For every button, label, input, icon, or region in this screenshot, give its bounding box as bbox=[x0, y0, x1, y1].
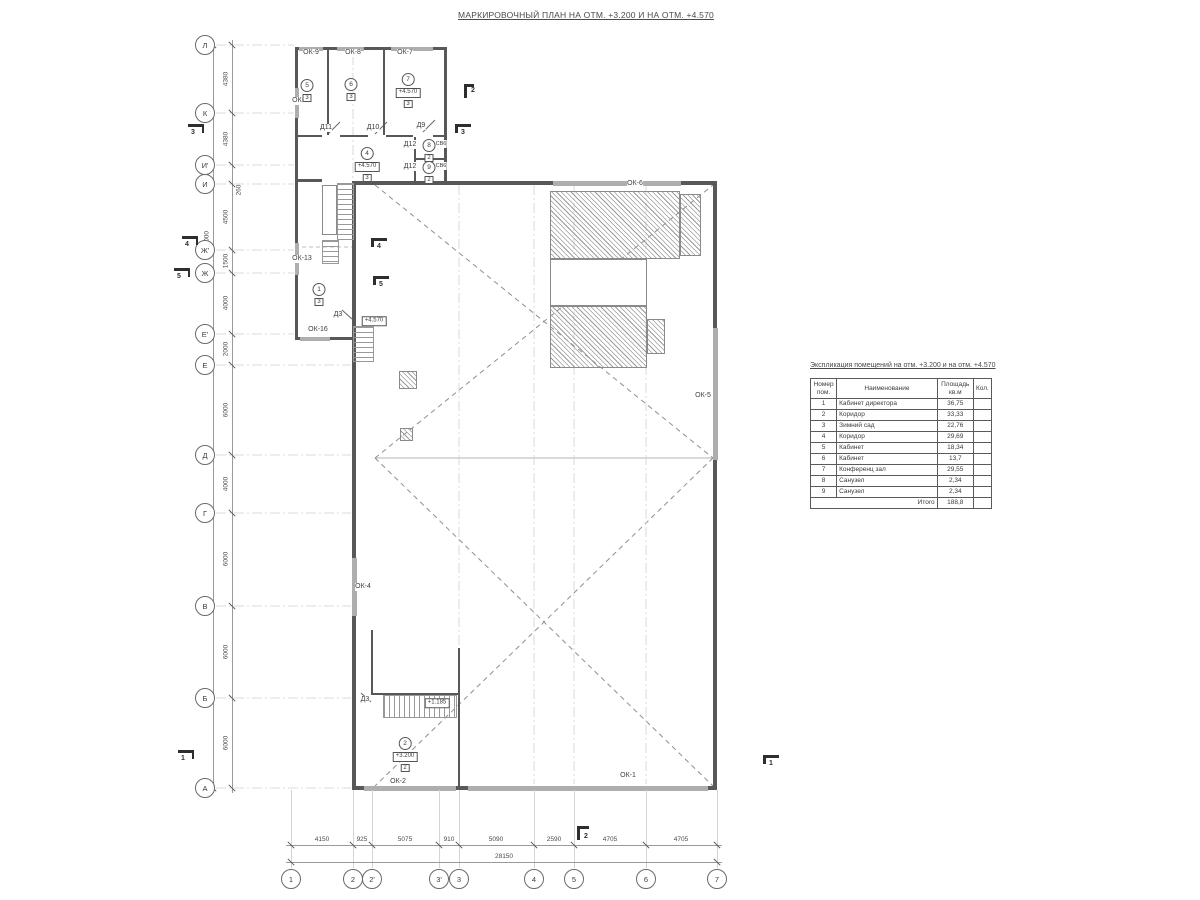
section-flag-stem bbox=[373, 276, 376, 285]
dimension-label: 6000 bbox=[223, 403, 230, 417]
room-number: 6 bbox=[811, 454, 837, 465]
window-mark-ОК-8: ОК-8 bbox=[345, 49, 361, 57]
window-mark-ОК-13: ОК-13 bbox=[292, 255, 312, 263]
floor-type-square: 3 bbox=[303, 94, 312, 102]
room-qty bbox=[973, 465, 991, 476]
floor-type-square: 2 bbox=[425, 176, 434, 184]
room-name: Зимний сад bbox=[837, 421, 938, 432]
axis-bubble-И': И' bbox=[195, 155, 215, 175]
axis-extension-line bbox=[353, 790, 354, 868]
dimension-chain bbox=[232, 40, 233, 793]
room-qty bbox=[973, 432, 991, 443]
window-mark-ОК-2: ОК-2 bbox=[390, 778, 406, 786]
room-qty bbox=[973, 410, 991, 421]
table-row: 2Коридор33,33 bbox=[811, 410, 992, 421]
room-name: Санузел bbox=[837, 487, 938, 498]
door-mark-Д3: Д3 bbox=[361, 696, 370, 704]
dimension-label: 910 bbox=[444, 836, 455, 843]
dimension-label: 4150 bbox=[315, 836, 329, 843]
col-header-number: Номер пом. bbox=[811, 379, 837, 399]
dimension-label: 4705 bbox=[603, 836, 617, 843]
room-marker-5: 53 bbox=[301, 79, 314, 102]
stair-flight bbox=[353, 326, 374, 362]
dimension-label: 260 bbox=[236, 185, 243, 196]
wall bbox=[371, 630, 373, 695]
dimension-chain bbox=[286, 845, 722, 846]
window bbox=[300, 337, 330, 341]
wall bbox=[414, 149, 416, 162]
room-number-circle: 4 bbox=[361, 147, 374, 160]
window-mark-ОК-16: ОК-16 bbox=[308, 326, 328, 334]
door-mark-Д12: Д12 bbox=[404, 141, 417, 149]
table-row: 4Коридор29,69 bbox=[811, 432, 992, 443]
table-total-row: Итого188,8 bbox=[811, 498, 992, 509]
dimension-label: 2000 bbox=[223, 342, 230, 356]
dimension-label-overall: 28150 bbox=[495, 853, 513, 860]
room-area: 2,34 bbox=[937, 487, 973, 498]
window-mark-ОК-5: ОК-5 bbox=[695, 392, 711, 400]
axis-extension-line bbox=[717, 790, 718, 868]
elevation-box: +3.200 bbox=[393, 752, 418, 762]
wall bbox=[295, 179, 322, 182]
vent-mark: СВ6 bbox=[436, 140, 447, 148]
window-mark-ОК-1: ОК-1 bbox=[620, 772, 636, 780]
axis-extension-line bbox=[646, 790, 647, 868]
dimension-chain bbox=[213, 40, 214, 793]
col-header-area: Площадь кв.м bbox=[937, 379, 973, 399]
room-area: 33,33 bbox=[937, 410, 973, 421]
axis-bubble-5: 5 bbox=[564, 869, 584, 889]
dimension-label: 5090 bbox=[489, 836, 503, 843]
section-flag-number: 4 bbox=[377, 243, 381, 250]
door-mark-Д10: Д10 bbox=[367, 124, 380, 132]
room-number-circle: 5 bbox=[301, 79, 314, 92]
room-marker-6: 63 bbox=[345, 78, 358, 101]
roof-hatch-area bbox=[400, 428, 413, 441]
window-mark-ОК-4: ОК-4 bbox=[355, 583, 371, 591]
room-number-circle: 6 bbox=[345, 78, 358, 91]
dimension-label: 4000 bbox=[223, 296, 230, 310]
section-flag-stem bbox=[371, 238, 374, 247]
window-mark-ОК-9: ОК-9 bbox=[303, 49, 319, 57]
blueprint-canvas: МАРКИРОВОЧНЫЙ ПЛАН НА ОТМ. +3.200 И НА О… bbox=[0, 0, 1200, 900]
wall bbox=[327, 50, 329, 135]
dimension-label: 925 bbox=[357, 836, 368, 843]
axis-bubble-2': 2' bbox=[362, 869, 382, 889]
stair-flight bbox=[337, 183, 354, 240]
axis-bubble-Г: Г bbox=[195, 503, 215, 523]
table-row: 3Зимний сад22,76 bbox=[811, 421, 992, 432]
door-mark-Д12: Д12 bbox=[404, 163, 417, 171]
dimension-label: 6000 bbox=[223, 645, 230, 659]
dimension-label: 1500 bbox=[223, 254, 230, 268]
window-mark-ОК-6: ОК-6 bbox=[627, 180, 643, 188]
axis-extension-line bbox=[291, 790, 292, 868]
section-flag-stem bbox=[202, 124, 205, 133]
axis-extension-line bbox=[534, 790, 535, 868]
room-number: 5 bbox=[811, 443, 837, 454]
section-flag-number: 3 bbox=[461, 129, 465, 136]
table-row: 1Кабинет директора36,75 bbox=[811, 399, 992, 410]
wall bbox=[340, 135, 368, 137]
dimension-label: 6000 bbox=[223, 736, 230, 750]
section-flag-number: 1 bbox=[181, 755, 185, 762]
axis-bubble-Ж': Ж' bbox=[195, 240, 215, 260]
room-number: 1 bbox=[811, 399, 837, 410]
room-number-circle: 2 bbox=[399, 737, 412, 750]
room-name: Конференц зал bbox=[837, 465, 938, 476]
col-header-name: Наименование bbox=[837, 379, 938, 399]
room-schedule: Экспликация помещений на отм. +3.200 и н… bbox=[810, 362, 992, 509]
elevation-box: +1.185 bbox=[425, 698, 450, 708]
axis-bubble-Е: Е bbox=[195, 355, 215, 375]
room-qty bbox=[973, 421, 991, 432]
axis-bubble-3: 3 bbox=[449, 869, 469, 889]
section-flag-stem bbox=[188, 268, 191, 277]
room-name: Санузел bbox=[837, 476, 938, 487]
floor-type-square: 3 bbox=[404, 100, 413, 108]
dimension-label: 4380 bbox=[223, 132, 230, 146]
room-name: Кабинет bbox=[837, 454, 938, 465]
axis-bubble-Б: Б bbox=[195, 688, 215, 708]
section-flag-stem bbox=[192, 750, 195, 759]
section-flag-number: 4 bbox=[185, 241, 189, 248]
col-header-qty: Кол. bbox=[973, 379, 991, 399]
room-number: 2 bbox=[811, 410, 837, 421]
room-number-circle: 1 bbox=[313, 283, 326, 296]
room-area: 29,55 bbox=[937, 465, 973, 476]
window bbox=[713, 328, 718, 460]
total-label: Итого bbox=[811, 498, 938, 509]
room-area: 2,34 bbox=[937, 476, 973, 487]
table-row: 6Кабинет13,7 bbox=[811, 454, 992, 465]
room-marker-4: 4+4.5703 bbox=[355, 147, 380, 182]
roof-plan-lines bbox=[0, 0, 1200, 900]
axis-bubble-3': 3' bbox=[429, 869, 449, 889]
floor-type-square: 3 bbox=[315, 298, 324, 306]
wall bbox=[458, 648, 460, 788]
room-number: 8 bbox=[811, 476, 837, 487]
floor-type-square: 3 bbox=[347, 93, 356, 101]
roof-hatch-area bbox=[550, 191, 680, 259]
dimension-label: 4000 bbox=[223, 477, 230, 491]
door-mark-Д3: Д3 bbox=[334, 311, 343, 319]
roof-hatch-area bbox=[550, 306, 647, 368]
room-number-circle: 8 bbox=[423, 139, 436, 152]
room-marker-8: 82 bbox=[423, 139, 436, 162]
stair-landing bbox=[322, 240, 339, 264]
axis-bubble-Л: Л bbox=[195, 35, 215, 55]
room-area: 36,75 bbox=[937, 399, 973, 410]
axis-extension-line bbox=[574, 790, 575, 868]
dimension-label: 4380 bbox=[223, 72, 230, 86]
room-number: 4 bbox=[811, 432, 837, 443]
wall bbox=[295, 135, 322, 137]
dimension-label: 2590 bbox=[547, 836, 561, 843]
wall bbox=[414, 137, 416, 140]
room-qty bbox=[973, 476, 991, 487]
room-qty bbox=[973, 454, 991, 465]
axis-bubble-К: К bbox=[195, 103, 215, 123]
axis-bubble-6: 6 bbox=[636, 869, 656, 889]
axis-bubble-И: И bbox=[195, 174, 215, 194]
room-name: Коридор bbox=[837, 410, 938, 421]
table-row: 8Санузел2,34 bbox=[811, 476, 992, 487]
roof-area bbox=[550, 259, 647, 306]
section-flag-number: 1 bbox=[769, 760, 773, 767]
wall bbox=[713, 181, 717, 790]
room-number: 9 bbox=[811, 487, 837, 498]
total-qty bbox=[973, 498, 991, 509]
room-qty bbox=[973, 487, 991, 498]
window bbox=[364, 786, 456, 791]
room-number-circle: 7 bbox=[402, 73, 415, 86]
room-name: Кабинет bbox=[837, 443, 938, 454]
section-flag-number: 5 bbox=[177, 273, 181, 280]
room-schedule-title: Экспликация помещений на отм. +3.200 и н… bbox=[810, 362, 992, 369]
table-row: 5Кабинет18,34 bbox=[811, 443, 992, 454]
axis-bubble-7: 7 bbox=[707, 869, 727, 889]
wall bbox=[433, 135, 446, 137]
axis-bubble-2: 2 bbox=[343, 869, 363, 889]
floor-type-square: 3 bbox=[363, 174, 372, 182]
vent-mark: СВ6 bbox=[436, 162, 447, 170]
axis-bubble-Е': Е' bbox=[195, 324, 215, 344]
door-mark-Д11: Д11 bbox=[320, 124, 332, 132]
axis-extension-line bbox=[459, 790, 460, 868]
room-area: 29,69 bbox=[937, 432, 973, 443]
room-name: Коридор bbox=[837, 432, 938, 443]
axis-extension-line bbox=[439, 790, 440, 868]
room-area: 13,7 bbox=[937, 454, 973, 465]
roof-hatch-area bbox=[399, 371, 417, 389]
dimension-label: 4500 bbox=[223, 210, 230, 224]
axis-extension-line bbox=[372, 790, 373, 868]
section-flag-stem bbox=[196, 236, 199, 245]
axis-bubble-4: 4 bbox=[524, 869, 544, 889]
window bbox=[468, 786, 708, 791]
door-mark-Д9: Д9 bbox=[417, 122, 426, 130]
room-schedule-table: Номер пом. Наименование Площадь кв.м Кол… bbox=[810, 378, 992, 509]
wall bbox=[352, 181, 356, 790]
section-flag-stem bbox=[455, 124, 458, 133]
axis-bubble-В: В bbox=[195, 596, 215, 616]
window bbox=[553, 181, 681, 186]
section-flag-number: 2 bbox=[584, 833, 588, 840]
drawing-title: МАРКИРОВОЧНЫЙ ПЛАН НА ОТМ. +3.200 И НА О… bbox=[396, 10, 776, 20]
elevation-box: +4.570 bbox=[396, 88, 421, 98]
window-mark-ОК-7: ОК-7 bbox=[397, 49, 413, 57]
room-qty bbox=[973, 399, 991, 410]
room-number: 7 bbox=[811, 465, 837, 476]
total-value: 188,8 bbox=[937, 498, 973, 509]
room-area: 22,76 bbox=[937, 421, 973, 432]
roof-hatch-area bbox=[647, 319, 665, 354]
axis-bubble-А: А bbox=[195, 778, 215, 798]
section-flag-number: 5 bbox=[379, 281, 383, 288]
room-marker-2: 2+3.2002 bbox=[393, 737, 418, 772]
elevation-box: +4.570 bbox=[362, 316, 387, 326]
room-number: 3 bbox=[811, 421, 837, 432]
floor-type-square: 2 bbox=[401, 764, 410, 772]
section-flag-number: 3 bbox=[191, 129, 195, 136]
dimension-label: 5075 bbox=[398, 836, 412, 843]
table-row: 9Санузел2,34 bbox=[811, 487, 992, 498]
dimension-label: 6000 bbox=[223, 552, 230, 566]
room-area: 18,34 bbox=[937, 443, 973, 454]
room-qty bbox=[973, 443, 991, 454]
section-flag-bar bbox=[577, 826, 589, 829]
elevation-box: +4.570 bbox=[355, 162, 380, 172]
room-marker-7: 7+4.5703 bbox=[396, 73, 421, 108]
room-marker-1: 13 bbox=[313, 283, 326, 306]
axis-bubble-Д: Д bbox=[195, 445, 215, 465]
roof-hatch-area bbox=[680, 194, 701, 256]
dimension-label: 4705 bbox=[674, 836, 688, 843]
table-row: 7Конференц зал29,55 bbox=[811, 465, 992, 476]
stair-flight bbox=[322, 185, 337, 235]
section-flag-stem bbox=[763, 755, 766, 764]
room-number-circle: 9 bbox=[423, 161, 436, 174]
wall bbox=[386, 135, 413, 137]
dimension-chain bbox=[286, 862, 722, 863]
room-name: Кабинет директора bbox=[837, 399, 938, 410]
wall bbox=[383, 50, 385, 135]
room-marker-9: 92 bbox=[423, 161, 436, 184]
section-flag-number: 2 bbox=[471, 87, 475, 94]
axis-bubble-1: 1 bbox=[281, 869, 301, 889]
axis-bubble-Ж: Ж bbox=[195, 263, 215, 283]
